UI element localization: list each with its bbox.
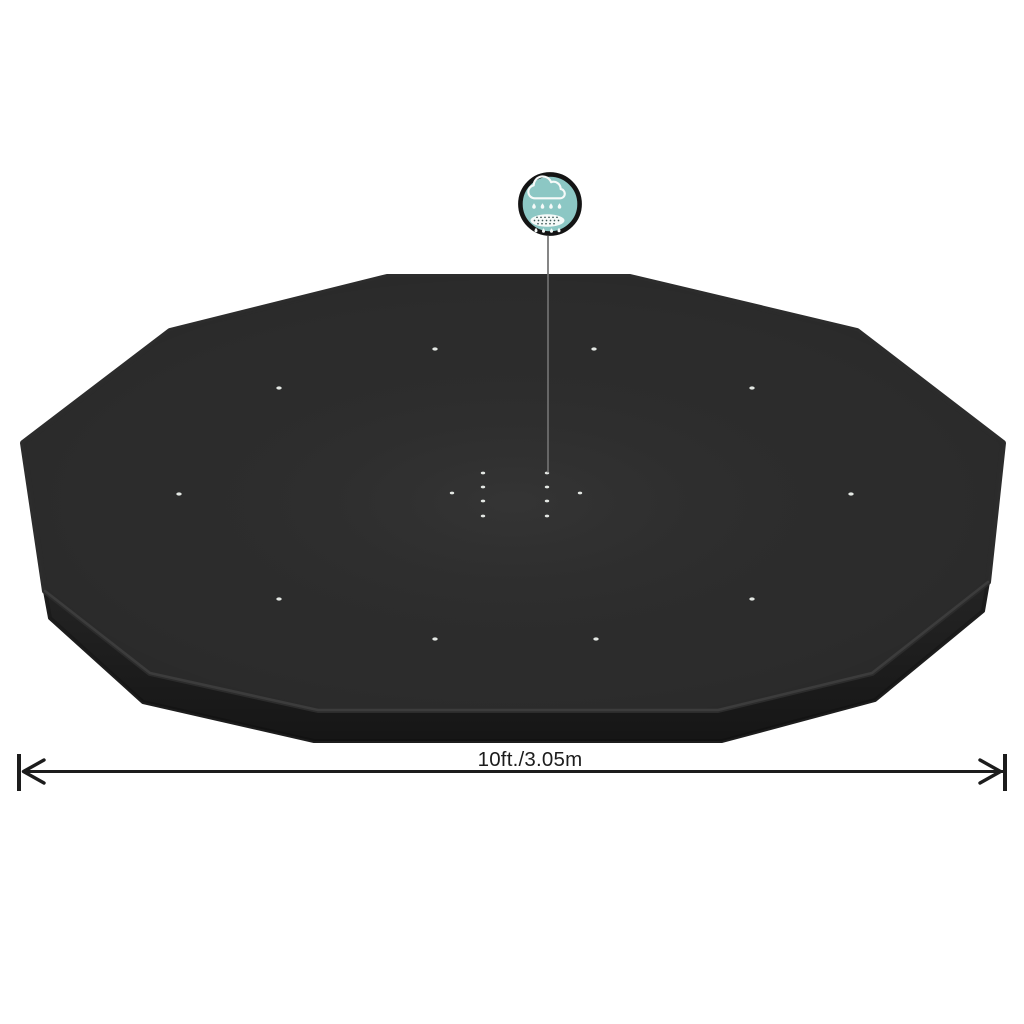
drain-hole-dot: [432, 347, 437, 350]
pool-cover-illustration: 10ft./3.05m: [0, 0, 1024, 1024]
drain-hole-dot: [481, 515, 485, 518]
pool-cover: [23, 277, 1003, 741]
drain-hole-dot: [749, 386, 754, 389]
dimension-annotation: 10ft./3.05m: [19, 748, 1005, 791]
drain-hole-dot: [481, 472, 485, 475]
drain-sieve-icon: [531, 214, 565, 226]
drain-hole-dot: [545, 486, 549, 489]
drain-hole-dot: [591, 347, 596, 350]
drain-hole-dot: [481, 486, 485, 489]
drain-hole-dot: [432, 637, 437, 640]
pool-cover-product-diagram: 10ft./3.05m: [0, 0, 1024, 1024]
rain-drainage-icon: [520, 174, 579, 233]
dimension-label: 10ft./3.05m: [478, 748, 583, 771]
drain-hole-dot: [749, 597, 754, 600]
drain-hole-dot: [545, 515, 549, 518]
drain-hole-dot: [481, 500, 485, 503]
drain-hole-dot: [578, 492, 582, 495]
drain-hole-dot: [545, 500, 549, 503]
top-shading-overlay: [23, 277, 1003, 710]
drain-hole-dot: [593, 637, 598, 640]
drain-hole-dot: [176, 492, 181, 495]
drain-hole-dot: [848, 492, 853, 495]
drain-hole-dot: [276, 597, 281, 600]
drain-hole-dot: [450, 492, 454, 495]
drain-hole-dot: [276, 386, 281, 389]
